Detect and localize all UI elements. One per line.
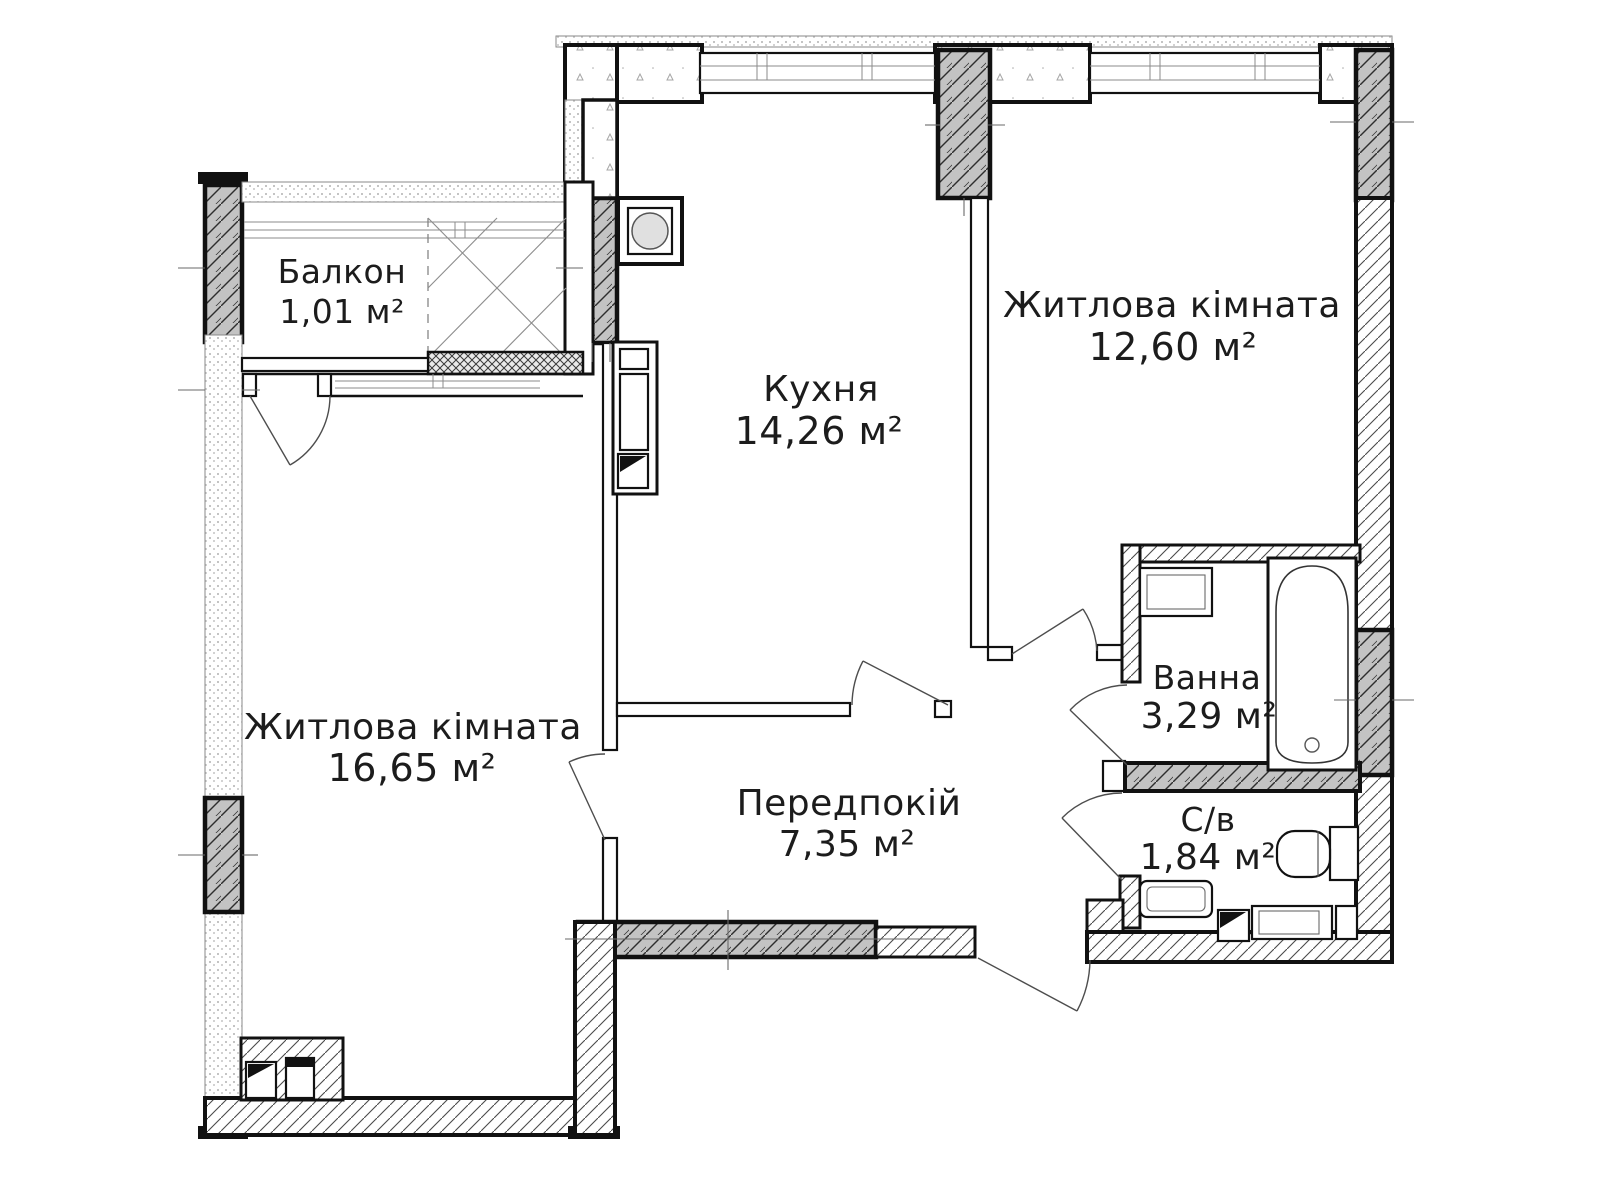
kitchen-wall-segment bbox=[617, 703, 850, 716]
room-area-living-left: 16,65 м² bbox=[328, 746, 497, 790]
right-room-door-jamb bbox=[1097, 645, 1122, 660]
right-wall-hatched bbox=[1356, 198, 1392, 960]
room-area-bath: 3,29 м² bbox=[1141, 696, 1278, 737]
balcony bbox=[242, 100, 617, 396]
right-room-divider bbox=[971, 198, 1122, 660]
pillar-top-right bbox=[1356, 50, 1392, 200]
room-area-living-right: 12,60 м² bbox=[1089, 325, 1258, 369]
room-area-hallway: 7,35 м² bbox=[779, 824, 916, 865]
hallway-bottom-wall-light bbox=[876, 927, 975, 957]
room-label-balcony: Балкон bbox=[278, 252, 407, 291]
right-room-door-stub bbox=[988, 647, 1012, 660]
hallway-left-wall-lower bbox=[575, 922, 615, 1135]
living-room-right-window bbox=[1090, 53, 1320, 93]
room-label-wc: С/в bbox=[1180, 800, 1235, 839]
pillar-top-middle bbox=[938, 50, 990, 198]
wc-sink-icon bbox=[1140, 881, 1212, 917]
duct-column-mid-box bbox=[620, 374, 648, 450]
room-label-kitchen: Кухня bbox=[763, 369, 879, 410]
kitchen-bottom-wall bbox=[617, 661, 951, 717]
kitchen-door-leaf bbox=[863, 661, 948, 705]
right-room-door-leaf bbox=[1012, 609, 1083, 654]
bathtub-icon bbox=[1276, 566, 1348, 763]
kitchen-door-arc bbox=[852, 661, 863, 705]
balcony-top-wall bbox=[242, 182, 565, 202]
right-wall bbox=[1356, 198, 1392, 960]
divider-kitchen-right bbox=[971, 198, 988, 647]
balcony-door-jamb-right bbox=[318, 374, 331, 396]
balcony-right-wall bbox=[565, 182, 593, 374]
left-wall-top-cap bbox=[198, 172, 248, 184]
balcony-bottom-wall-thin bbox=[242, 358, 428, 371]
right-wall-pillar bbox=[1356, 630, 1392, 775]
balcony-door-jamb-left bbox=[243, 374, 256, 396]
kitchen-fixtures bbox=[613, 198, 682, 494]
left-wall-insulated bbox=[205, 335, 242, 1135]
left-wall-pillar bbox=[205, 798, 242, 912]
toilet-tank bbox=[1330, 827, 1358, 880]
room-label-living-right: Житлова кімната bbox=[1003, 285, 1341, 326]
room-label-bath: Ванна bbox=[1153, 658, 1262, 697]
bath-door-arc bbox=[1070, 685, 1127, 710]
room-area-kitchen: 14,26 м² bbox=[735, 409, 904, 453]
balcony-door-arc bbox=[290, 396, 330, 465]
room-area-wc: 1,84 м² bbox=[1140, 837, 1277, 878]
bottom-wall bbox=[205, 1038, 620, 1139]
kitchen-left-divider bbox=[569, 343, 617, 926]
entrance-door-arc bbox=[1077, 960, 1090, 1011]
kitchen-window bbox=[700, 53, 935, 93]
vent-shaft-circle bbox=[632, 213, 668, 249]
entrance-door-leaf bbox=[978, 958, 1077, 1011]
room-label-hallway: Передпокій bbox=[737, 783, 962, 824]
divider-wall-lower bbox=[603, 838, 617, 926]
living-room-door-leaf bbox=[569, 762, 605, 840]
balcony-bottom-wall-hatched bbox=[428, 352, 583, 374]
wc-door-leaf bbox=[1062, 818, 1122, 880]
balcony-door bbox=[250, 396, 330, 465]
bath-door-leaf bbox=[1070, 710, 1127, 765]
bathtub-drain bbox=[1305, 738, 1319, 752]
bath-door-jamb bbox=[1103, 761, 1125, 791]
balcony-door-leaf bbox=[250, 396, 290, 465]
toilet-icon bbox=[1277, 831, 1330, 877]
room-label-living-left: Житлова кімната bbox=[244, 707, 582, 748]
duct-column-top-box bbox=[620, 349, 648, 369]
right-room-door-arc bbox=[1083, 609, 1097, 651]
floor-plan: Балкон 1,01 м² Житлова кімната 12,60 м² … bbox=[0, 0, 1600, 1200]
pillar-balcony-left bbox=[205, 185, 242, 342]
kitchen-door-jamb bbox=[935, 701, 951, 717]
wc-small-box bbox=[1336, 906, 1357, 939]
bottom-wall-left-room bbox=[205, 1098, 615, 1135]
duct-box-2-mark bbox=[286, 1058, 314, 1067]
floor-plan-page: Балкон 1,01 м² Житлова кімната 12,60 м² … bbox=[0, 0, 1600, 1200]
bath-left-wall bbox=[1122, 545, 1140, 682]
hallway-walls bbox=[565, 910, 1090, 1135]
living-room-door-arc bbox=[569, 754, 605, 762]
room-area-balcony: 1,01 м² bbox=[279, 292, 405, 331]
wc-door-arc bbox=[1062, 793, 1122, 818]
